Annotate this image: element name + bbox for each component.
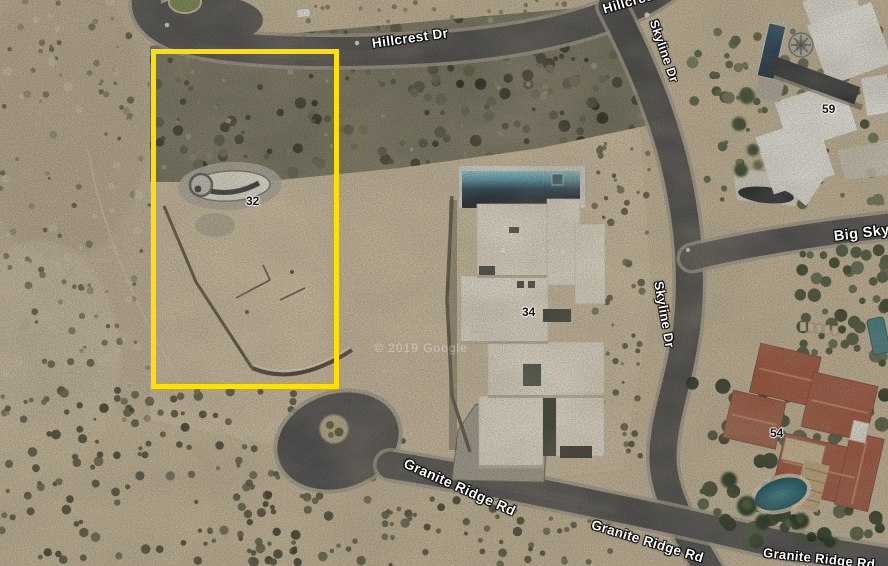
imagery-watermark: © 2019 Google: [374, 341, 468, 355]
parcel-number-59: 59: [822, 102, 835, 116]
aerial-map-canvas: Hillcrest Dr Hillcrest Dr Skyline Dr Sky…: [0, 0, 888, 566]
parcel-number-54: 54: [770, 426, 783, 440]
parcel-number-34: 34: [522, 305, 535, 319]
parcel-number-32: 32: [246, 194, 259, 208]
highlight-rectangle: [151, 49, 339, 389]
